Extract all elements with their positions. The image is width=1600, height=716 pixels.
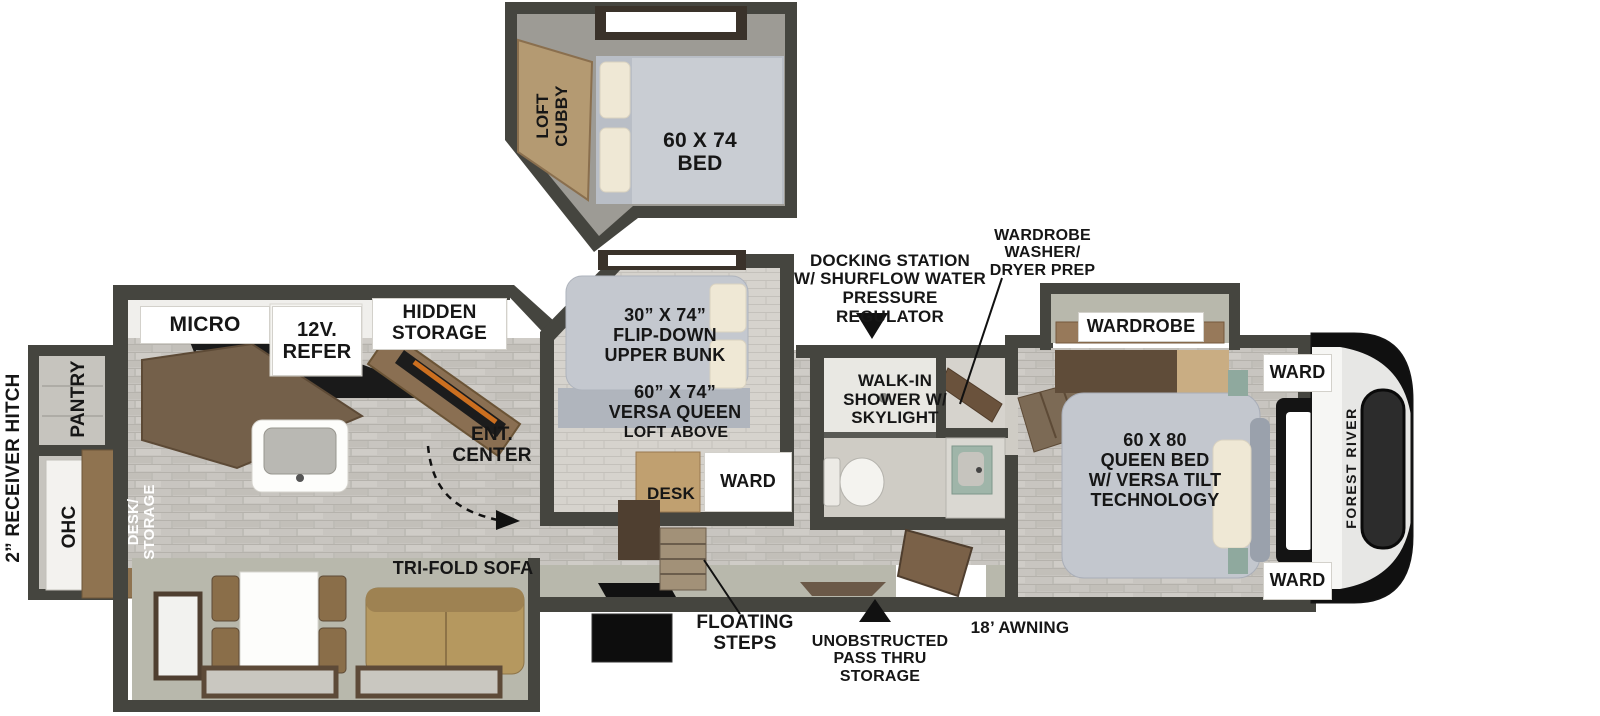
floorplan-canvas: 2” RECEIVER HITCH PANTRY OHC DESK/ STORA…: [0, 0, 1600, 716]
dinette-table: [240, 572, 318, 676]
slide-window: [156, 594, 200, 678]
bunk-pillow: [710, 284, 746, 332]
loft-cubby-cabinet: [518, 40, 592, 200]
docking-station-arrow: [856, 313, 888, 339]
kitchen-sink: [264, 428, 336, 474]
bunk-pillow: [710, 340, 746, 388]
refrigerator: [270, 304, 362, 376]
compartment-door: [800, 582, 886, 596]
entry-step-box: [592, 614, 672, 662]
toilet-tank: [824, 458, 840, 506]
overhead-cabinet: [1055, 350, 1177, 393]
floorplan-graphic: [0, 0, 1600, 716]
versa-queen-bed: [558, 388, 750, 428]
slide-window: [358, 668, 500, 696]
wardrobe-slide: [1040, 283, 1240, 350]
ohc-cabinet: [46, 460, 82, 590]
loft-pillow: [600, 62, 630, 118]
front-cap: [1312, 334, 1412, 602]
overhead-cabinet: [1177, 350, 1229, 395]
dinette-chair: [319, 576, 346, 621]
bed-pillow: [1213, 440, 1251, 548]
wardrobe-cabinet: [1056, 322, 1224, 343]
loft-room: [505, 2, 797, 252]
slide-window: [204, 668, 336, 696]
loft-pillow: [600, 128, 630, 192]
dinette-chair: [212, 576, 239, 621]
windshield-decal: [1362, 390, 1404, 548]
toilet: [840, 458, 884, 506]
living-slide: [113, 558, 540, 712]
bedroom: [1005, 335, 1322, 602]
